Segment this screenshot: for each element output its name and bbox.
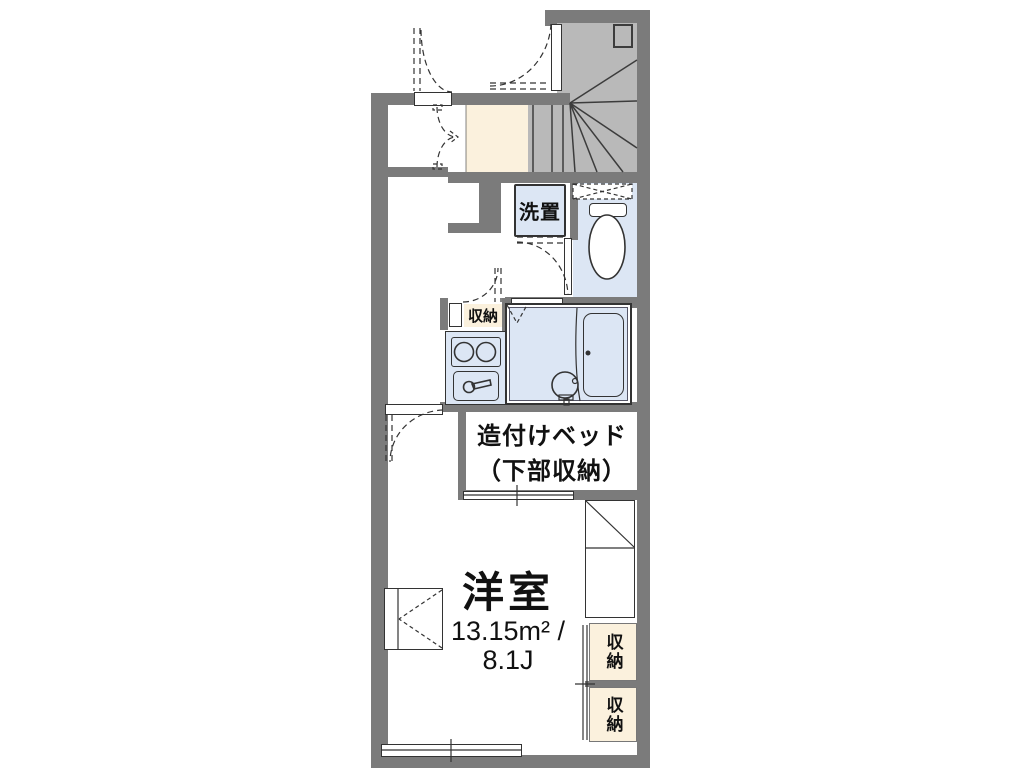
storage-lower: 収納 — [589, 687, 637, 742]
closet-bottom-wall — [388, 167, 448, 177]
entry-door-leaf — [551, 24, 562, 91]
balcony-door-leaf — [414, 92, 452, 106]
entry-door-swing — [490, 24, 551, 89]
main-room-area-m2: 13.15m² / — [451, 616, 565, 647]
bathtub — [583, 313, 624, 397]
entrance-genkan-floor — [466, 105, 528, 172]
toilet-door-leaf — [564, 238, 572, 295]
main-room-window — [381, 744, 522, 757]
genkan-bottom-wall — [448, 172, 637, 183]
main-room-area-jo: 8.1J — [482, 645, 533, 676]
stair-top-wall — [545, 10, 650, 23]
bed-label-line2: （下部収納） — [477, 451, 627, 486]
left-outer-wall — [371, 93, 388, 768]
toilet-floor — [573, 183, 637, 297]
main-room-door-leaf — [385, 404, 443, 415]
kitchen-sink — [453, 371, 499, 401]
bed-left-wall — [458, 412, 466, 500]
bed-area-label: 造付けベッド （下部収納） — [466, 418, 638, 484]
main-room-door-swing — [386, 410, 443, 462]
toilet-door-swing — [517, 237, 568, 295]
right-outer-wall — [637, 10, 650, 768]
duct-wall-bottom — [448, 223, 501, 233]
bed-label-line1: 造付けベッド — [477, 416, 627, 451]
floor-plan: 洗置 収納 収納 収納 造付けベッド （下部収納） 洋室 13.15m² / 8… — [0, 0, 1016, 772]
washer-space: 洗置 — [514, 184, 566, 237]
main-room-label: 洋室 13.15m² / 8.1J — [408, 565, 608, 670]
closet-bifold-doors — [433, 105, 458, 169]
balcony-door-swing — [414, 28, 452, 92]
main-room-name: 洋室 — [462, 559, 554, 620]
kitchen-left-wall-stub — [440, 298, 448, 330]
hall-storage-door-swing — [463, 268, 501, 302]
staircase-lower-steps — [528, 105, 557, 172]
kitchen-side-duct — [449, 303, 462, 327]
bed-window — [463, 491, 574, 500]
storage-lower-label: 収納 — [601, 696, 626, 734]
toilet-high-window — [573, 184, 632, 199]
unit-top-wall — [371, 93, 570, 105]
stove — [451, 337, 501, 367]
toilet-tank — [589, 203, 627, 217]
kitchen-storage: 収納 — [464, 304, 502, 327]
washer-label: 洗置 — [519, 196, 561, 225]
stair-pole — [613, 24, 633, 48]
kitchen-storage-label: 収納 — [468, 305, 498, 326]
